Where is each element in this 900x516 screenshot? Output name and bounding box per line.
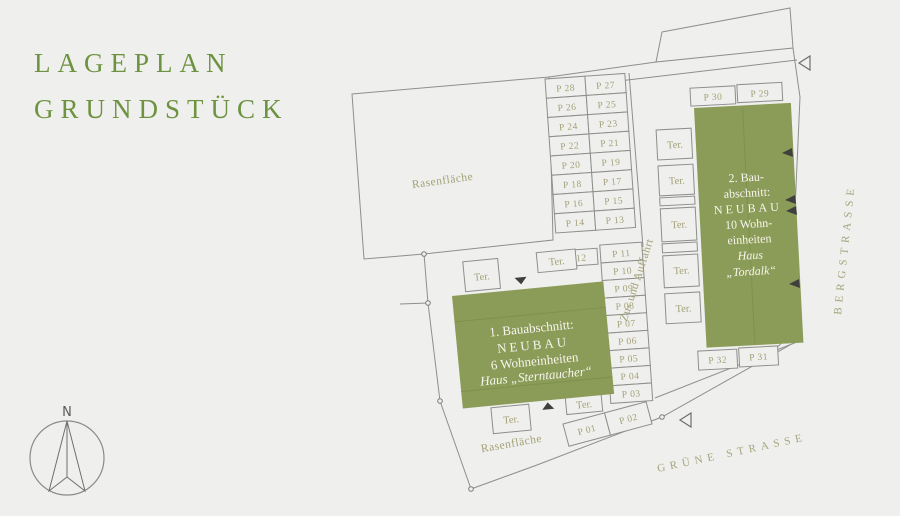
parking-label-p32: P 32 — [708, 356, 727, 367]
parking-label-p03: P 03 — [622, 389, 641, 400]
parking-label-p24: P 24 — [559, 122, 578, 133]
parking-label-p27: P 27 — [596, 81, 615, 92]
compass-rose: N — [30, 405, 104, 495]
parking-label-p23: P 23 — [599, 119, 618, 130]
entrance-marker-icon — [515, 277, 528, 285]
terrace-label: Ter. — [667, 140, 683, 152]
terrace-label: Ter. — [675, 303, 691, 315]
parking-label-p18: P 18 — [563, 180, 582, 191]
parking-label-p25: P 25 — [597, 100, 616, 111]
parking-label-p21: P 21 — [600, 139, 619, 150]
fence-post — [660, 415, 665, 420]
survey-triangle-icon — [680, 413, 691, 427]
terrace-label: Ter. — [503, 414, 520, 426]
parking-label-p28: P 28 — [556, 84, 575, 95]
parking-label-p13: P 13 — [605, 216, 624, 227]
terrace-divider — [660, 196, 695, 206]
parking-label-p05: P 05 — [619, 354, 638, 365]
terrace-label: Ter. — [671, 220, 687, 232]
parking-grid-north: P 28 P 27 P 26 P 25 P 24 P 23 P 22 P 21 … — [545, 73, 636, 233]
siteplan-drawing: P 28 P 27 P 26 P 25 P 24 P 23 P 22 P 21 … — [0, 0, 900, 516]
parking-label-p17: P 17 — [603, 177, 622, 188]
fence-post — [426, 301, 431, 306]
parking-label-p04: P 04 — [620, 372, 639, 383]
fence-post — [438, 399, 443, 404]
survey-triangle-icon — [799, 56, 810, 70]
compass-needle-icon — [67, 421, 85, 491]
building2-label-units2: einheiten — [727, 231, 772, 247]
building2-label-haus: Haus — [736, 248, 763, 263]
terrace-label: Ter. — [473, 271, 490, 283]
street-label-bergstrasse: BERGSTRASSE — [832, 183, 858, 315]
lawn-label-south: Rasenfläche — [480, 433, 543, 456]
parking-label-p22: P 22 — [560, 141, 579, 152]
building2-label-phase2: abschnitt: — [723, 185, 770, 201]
terrace-divider — [662, 242, 697, 253]
parking-label-p20: P 20 — [561, 161, 580, 172]
parking-label-p26: P 26 — [557, 103, 576, 114]
terrace-label: Ter. — [669, 176, 685, 188]
west-stub-line — [400, 303, 428, 304]
terrace-label: Ter. — [673, 265, 689, 277]
building2-label-units1: 10 Wohn- — [725, 216, 773, 232]
compass-needle-icon — [49, 421, 67, 491]
parking-label-p10: P 10 — [613, 266, 632, 277]
compass-north-label: N — [62, 405, 72, 420]
building1-block: Ter. Ter. Ter. Ter. 1. Bauabschnitt: NEU… — [449, 247, 617, 437]
neighbour-building-outline — [656, 8, 793, 62]
parking-label-p06: P 06 — [618, 337, 637, 348]
lawn-parcel-outline — [352, 77, 553, 259]
parking-label-p31: P 31 — [749, 352, 768, 363]
parking-label-p16: P 16 — [564, 199, 583, 210]
parking-label-p30: P 30 — [703, 93, 722, 104]
building2-label-name: „Tordalk“ — [726, 263, 777, 280]
parking-label-p11: P 11 — [612, 249, 631, 260]
parking-label-p19: P 19 — [601, 158, 620, 169]
parking-label-p15: P 15 — [604, 196, 623, 207]
building2-label-phase1: 2. Bau- — [728, 169, 764, 185]
terrace-label: Ter. — [576, 399, 593, 411]
terrace-label: Ter. — [548, 256, 565, 268]
parking-label-p29: P 29 — [750, 89, 769, 100]
fence-post — [422, 252, 427, 257]
entrance-marker-icon — [542, 402, 555, 410]
siteplan-page: LAGEPLAN GRUNDSTÜCK — [0, 0, 900, 516]
parking-label-p14: P 14 — [565, 218, 584, 229]
building2-block: P 30 P 29 P 32 P 31 Ter. Ter. Ter. Ter. … — [654, 82, 805, 372]
lawn-label-north: Rasenfläche — [411, 171, 474, 191]
fence-post — [469, 487, 474, 492]
street-label-gruene-strasse: GRÜNE STRASSE — [656, 431, 808, 474]
